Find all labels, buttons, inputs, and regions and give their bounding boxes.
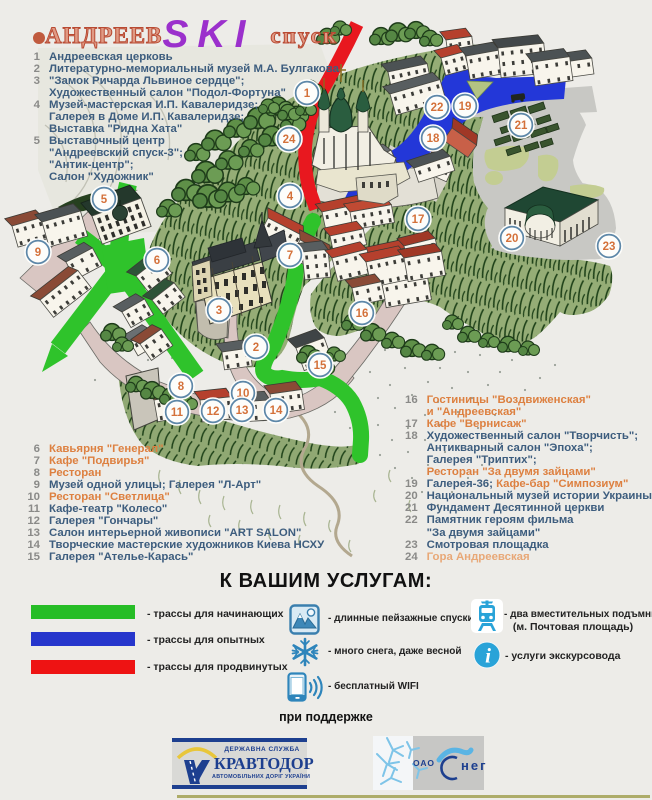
svg-text:4: 4 xyxy=(287,191,294,203)
svg-text:19: 19 xyxy=(459,101,472,113)
svg-text:17: 17 xyxy=(412,214,425,226)
svg-text:3: 3 xyxy=(216,305,222,317)
svg-text:22: 22 xyxy=(431,102,444,114)
svg-text:11: 11 xyxy=(171,407,184,419)
svg-text:16: 16 xyxy=(356,308,369,320)
svg-text:8: 8 xyxy=(178,381,185,393)
svg-text:5: 5 xyxy=(101,194,108,206)
svg-text:23: 23 xyxy=(603,241,616,253)
svg-text:20: 20 xyxy=(506,233,519,245)
svg-text:13: 13 xyxy=(236,405,249,417)
svg-text:18: 18 xyxy=(427,133,440,145)
svg-text:i: i xyxy=(485,644,491,668)
svg-text:7: 7 xyxy=(287,250,293,262)
svg-text:15: 15 xyxy=(314,360,327,372)
svg-text:2: 2 xyxy=(253,342,259,354)
svg-text:6: 6 xyxy=(154,255,160,267)
svg-text:14: 14 xyxy=(270,405,283,417)
svg-text:21: 21 xyxy=(515,120,528,132)
svg-text:12: 12 xyxy=(207,406,220,418)
svg-text:9: 9 xyxy=(35,247,41,259)
